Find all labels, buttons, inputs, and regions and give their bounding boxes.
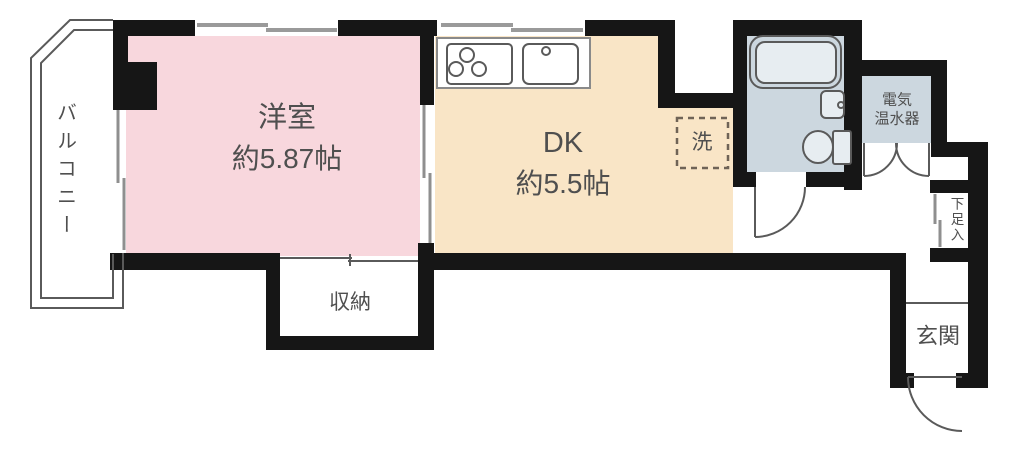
toilet-icon — [803, 131, 851, 164]
storage-sliding-door — [280, 254, 418, 266]
water-heater-label-line1: 電気 — [874, 91, 919, 110]
laundry-space-label: 洗 — [692, 130, 713, 156]
western-room-name: 洋室 — [258, 102, 316, 134]
dining-kitchen-size: 約5.5帖 — [516, 166, 611, 201]
western-room-label: 洋室 約5.87帖 — [232, 100, 343, 176]
bathtub-icon — [750, 36, 841, 88]
dining-kitchen-name: DK — [543, 127, 583, 159]
western-room-window — [195, 20, 338, 36]
balcony-label: バルコニー — [52, 102, 77, 242]
water-heater-label-line2: 温水器 — [874, 110, 919, 129]
entrance-label: 玄関 — [916, 322, 960, 350]
room-partition-sliding-door — [424, 105, 430, 243]
balcony-sliding-door — [118, 110, 124, 250]
storage-label: 収納 — [329, 290, 371, 316]
water-heater-label: 電気 温水器 — [874, 91, 919, 129]
western-room-size: 約5.87帖 — [232, 141, 343, 176]
washbasin-icon — [821, 91, 844, 118]
balcony-outline-outer — [31, 20, 123, 308]
dining-kitchen-label: DK 約5.5帖 — [516, 125, 611, 201]
shoe-cabinet-label: 下足入 — [947, 197, 964, 244]
floor-plan: 洋室 約5.87帖 DK 約5.5帖 バルコニー 洗 収納 電気 温水器 下足入… — [0, 0, 1024, 460]
floor-plan-linework — [0, 0, 1024, 460]
bathroom-swing-door — [755, 187, 805, 237]
kitchen-window — [437, 20, 585, 36]
shoe-cabinet-sliding-door — [935, 194, 940, 247]
entrance-swing-door — [908, 377, 962, 431]
water-heater-double-door — [864, 143, 929, 176]
